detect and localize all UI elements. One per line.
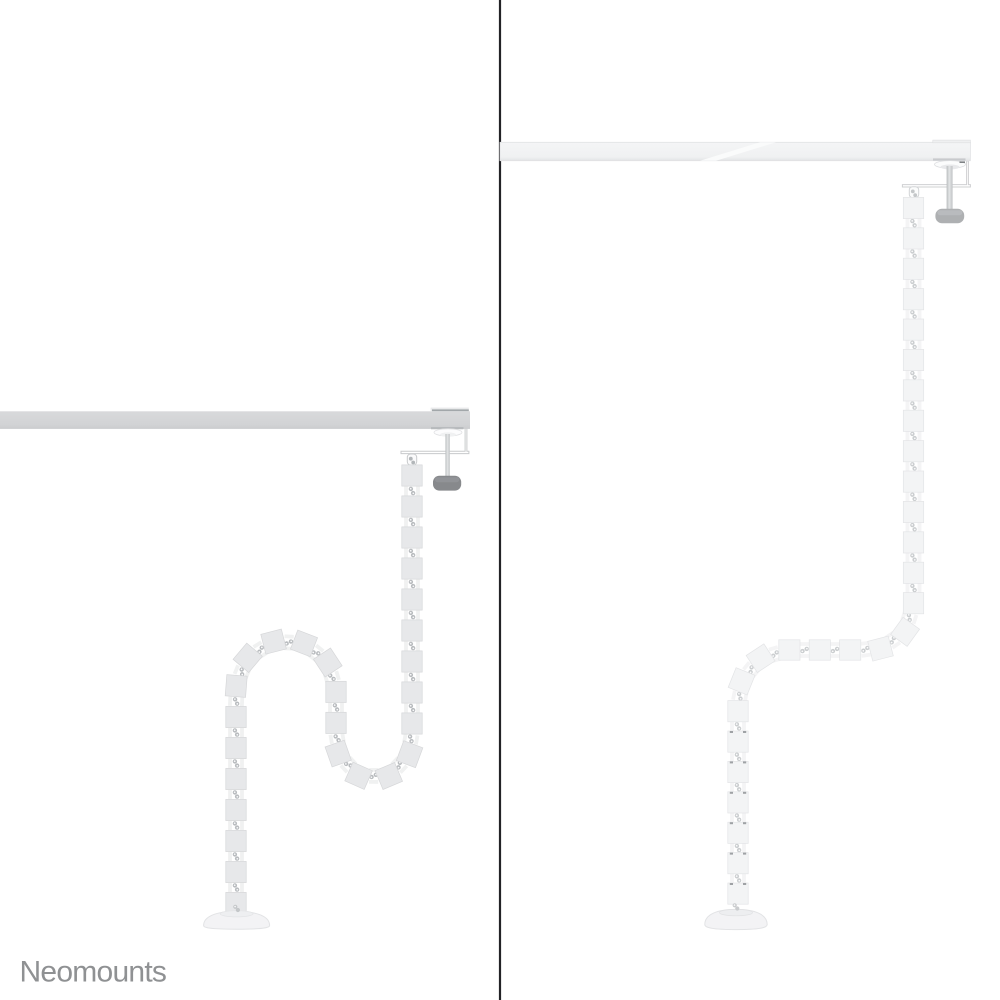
svg-text:Neomounts: Neomounts [20,956,167,989]
